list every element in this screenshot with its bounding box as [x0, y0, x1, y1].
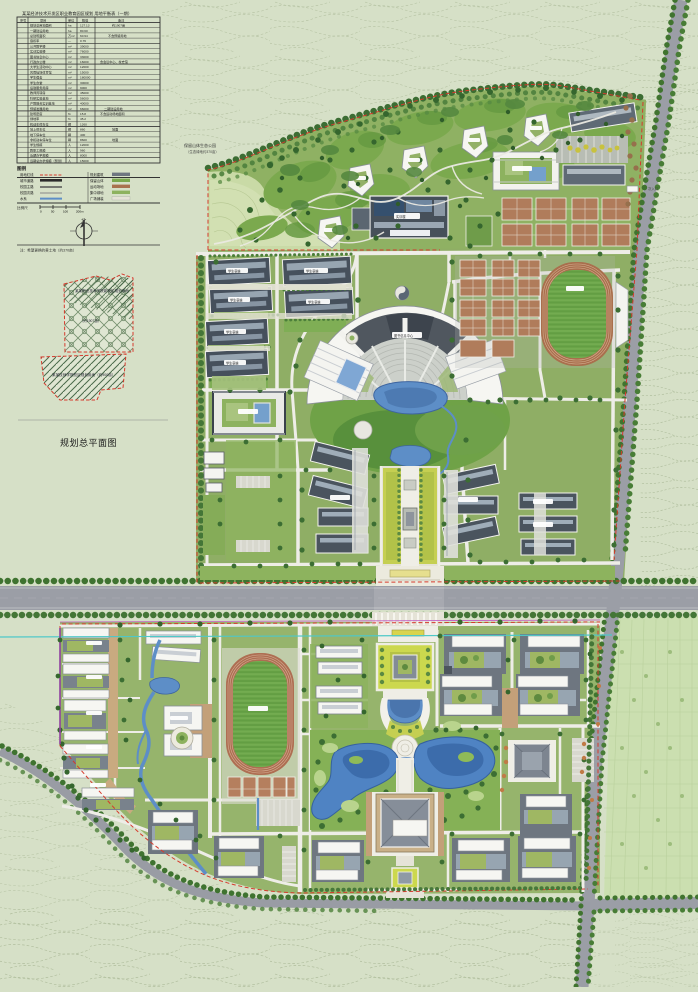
svg-text:教师周转房: 教师周转房	[30, 90, 45, 95]
svg-text:约1907亩: 约1907亩	[112, 23, 125, 28]
svg-text:广场铺装: 广场铺装	[90, 196, 104, 201]
svg-text:注：希望更换的黄土地（约370亩）: 注：希望更换的黄土地（约370亩）	[20, 248, 76, 253]
svg-text:45.2: 45.2	[80, 117, 86, 121]
svg-text:m²: m²	[68, 65, 72, 69]
svg-text:比例尺: 比例尺	[17, 205, 28, 210]
svg-text:辆: 辆	[68, 137, 71, 142]
svg-text:12000: 12000	[80, 65, 89, 69]
svg-text:m²: m²	[68, 60, 72, 64]
svg-text:76000: 76000	[80, 50, 89, 54]
svg-text:960: 960	[80, 148, 85, 152]
svg-text:12000: 12000	[80, 143, 89, 147]
svg-text:一期建设用地: 一期建设用地	[30, 28, 49, 33]
svg-text:机动车停车位: 机动车停车位	[30, 121, 49, 126]
svg-text:学生宿舍: 学生宿舍	[308, 300, 322, 305]
svg-text:8000: 8000	[80, 154, 87, 158]
svg-text:学生宿舍: 学生宿舍	[30, 75, 42, 80]
svg-text:8600: 8600	[80, 138, 87, 142]
svg-text:远期总办学规模（预测）: 远期总办学规模（预测）	[30, 158, 64, 163]
svg-text:50: 50	[51, 210, 55, 214]
svg-text:绿地率: 绿地率	[30, 116, 39, 121]
svg-text:学生宿舍: 学生宿舍	[306, 269, 320, 274]
svg-text:地面: 地面	[112, 137, 118, 142]
svg-text:校园主路: 校园主路	[20, 184, 34, 189]
svg-text:40000: 40000	[80, 102, 89, 106]
svg-text:60.94: 60.94	[80, 34, 88, 38]
svg-text:地上停车位: 地上停车位	[30, 127, 45, 132]
svg-text:万m²: 万m²	[68, 34, 75, 38]
svg-text:图书信息中心: 图书信息中心	[30, 54, 49, 59]
svg-text:保留山体生态公园: 保留山体生态公园	[184, 142, 216, 148]
svg-text:人: 人	[68, 159, 71, 163]
svg-text:9000: 9000	[80, 86, 87, 90]
svg-text:辆: 辆	[68, 121, 71, 126]
svg-text:备注: 备注	[118, 17, 124, 22]
svg-text:城市道路: 城市道路	[20, 178, 34, 183]
svg-text:80.60: 80.60	[80, 29, 88, 33]
svg-text:180000: 180000	[80, 76, 91, 80]
svg-text:m²: m²	[68, 50, 72, 54]
svg-text:建筑密度: 建筑密度	[30, 111, 42, 116]
svg-text:学生宿舍: 学生宿舍	[230, 298, 244, 303]
svg-text:图书信息中心: 图书信息中心	[394, 333, 414, 338]
svg-text:m²: m²	[68, 81, 72, 85]
svg-text:图例: 图例	[17, 165, 27, 172]
svg-text:序号: 序号	[20, 17, 26, 22]
svg-text:ha: ha	[68, 29, 72, 33]
svg-text:（生态绿地约370亩）: （生态绿地约370亩）	[186, 149, 219, 154]
svg-text:规划总平面图: 规划总平面图	[60, 437, 117, 448]
svg-text:m²: m²	[68, 96, 72, 100]
svg-text:学生宿舍: 学生宿舍	[226, 361, 240, 366]
svg-text:%: %	[68, 112, 71, 116]
svg-text:人: 人	[68, 154, 71, 158]
svg-text:200m: 200m	[76, 210, 84, 214]
svg-text:人: 人	[68, 143, 71, 147]
svg-text:地下停车位: 地下停车位	[30, 132, 45, 137]
svg-text:运动场地: 运动场地	[90, 184, 104, 189]
svg-text:容积率: 容积率	[30, 38, 39, 43]
svg-text:辆: 辆	[68, 127, 71, 132]
svg-text:学生宿舍: 学生宿舍	[228, 269, 242, 274]
svg-text:不含运动场地面积: 不含运动场地面积	[100, 111, 125, 116]
svg-text:16000: 16000	[80, 60, 89, 64]
svg-text:m²: m²	[68, 55, 72, 59]
svg-text:56000: 56000	[80, 96, 89, 100]
svg-text:127.13: 127.13	[80, 24, 90, 28]
svg-text:m²: m²	[68, 102, 72, 106]
svg-text:次入口: 次入口	[648, 186, 658, 191]
svg-text:15000: 15000	[80, 70, 89, 74]
svg-text:860: 860	[80, 128, 85, 132]
svg-text:总建筑面积: 总建筑面积	[30, 33, 45, 38]
svg-text:39000: 39000	[80, 44, 89, 48]
svg-text:含会议中心、校史馆: 含会议中心、校史馆	[100, 59, 128, 64]
svg-text:ha: ha	[68, 24, 72, 28]
svg-text:某某技师学院校区规划用地（约900亩）: 某某技师学院校区规划用地（约900亩）	[52, 372, 116, 377]
svg-text:校园次路: 校园次路	[20, 190, 34, 195]
svg-text:实训实验楼: 实训实验楼	[30, 49, 45, 54]
svg-text:15.8: 15.8	[80, 112, 86, 116]
svg-text:单位: 单位	[68, 17, 74, 22]
svg-text:辆: 辆	[68, 132, 71, 137]
svg-text:保留山体: 保留山体	[90, 178, 104, 183]
svg-text:公共教学楼: 公共教学楼	[30, 43, 45, 48]
svg-text:实训楼: 实训楼	[396, 214, 406, 219]
svg-text:近期办学规模: 近期办学规模	[30, 153, 49, 158]
svg-text:风雨操场体育馆: 风雨操场体育馆	[30, 69, 52, 74]
svg-text:行政办公楼: 行政办公楼	[30, 59, 45, 64]
svg-text:45000: 45000	[80, 91, 89, 95]
svg-text:人: 人	[68, 148, 71, 152]
svg-text:学生食堂: 学生食堂	[30, 80, 42, 85]
svg-text:不含预留用地: 不含预留用地	[108, 33, 127, 38]
svg-text:（约1907亩）: （约1907亩）	[80, 318, 101, 323]
svg-text:m²: m²	[68, 91, 72, 95]
svg-text:15000: 15000	[80, 159, 89, 163]
svg-text:产教融合实训基地: 产教融合实训基地	[30, 101, 55, 106]
svg-text:二期建设用地: 二期建设用地	[104, 106, 123, 111]
svg-text:学生宿舍: 学生宿舍	[226, 330, 240, 335]
svg-text:m²: m²	[68, 107, 72, 111]
svg-text:1260: 1260	[80, 122, 87, 126]
svg-text:某某职业技术学院新校区规划用地: 某某职业技术学院新校区规划用地	[75, 288, 129, 293]
svg-text:某某经济技术开发区职业教育园区规划 用地平衡表（一期）: 某某经济技术开发区职业教育园区规划 用地平衡表（一期）	[22, 10, 132, 17]
svg-text:数值: 数值	[82, 17, 88, 22]
svg-text:m²: m²	[68, 86, 72, 90]
svg-text:大学生活动中心: 大学生活动中心	[30, 64, 52, 69]
svg-text:预留发展用地: 预留发展用地	[30, 106, 49, 111]
svg-text:m²: m²	[68, 76, 72, 80]
svg-text:科研实验基地: 科研实验基地	[30, 95, 49, 100]
svg-text:非机动车停车位: 非机动车停车位	[30, 137, 52, 142]
svg-text:项目: 项目	[40, 18, 46, 22]
svg-text:m²: m²	[68, 44, 72, 48]
svg-text:400: 400	[80, 133, 85, 137]
svg-text:100: 100	[63, 210, 68, 214]
svg-text:教职工规模: 教职工规模	[30, 147, 45, 152]
svg-text:地面: 地面	[112, 127, 118, 132]
svg-text:学生规模: 学生规模	[30, 142, 42, 147]
svg-text:后勤服务用房: 后勤服务用房	[30, 85, 49, 90]
svg-text:%: %	[68, 117, 71, 121]
svg-text:规划总用地面积: 规划总用地面积	[30, 23, 52, 28]
svg-text:水系: 水系	[20, 196, 27, 201]
svg-text:0.76: 0.76	[80, 39, 86, 43]
svg-text:集中绿地: 集中绿地	[90, 190, 104, 195]
svg-text:33000: 33000	[80, 55, 89, 59]
svg-text:m²: m²	[68, 70, 72, 74]
svg-text:66000: 66000	[80, 107, 89, 111]
svg-text:用地红线: 用地红线	[20, 172, 34, 177]
svg-text:规划建筑: 规划建筑	[90, 172, 104, 177]
svg-text:30000: 30000	[80, 81, 89, 85]
